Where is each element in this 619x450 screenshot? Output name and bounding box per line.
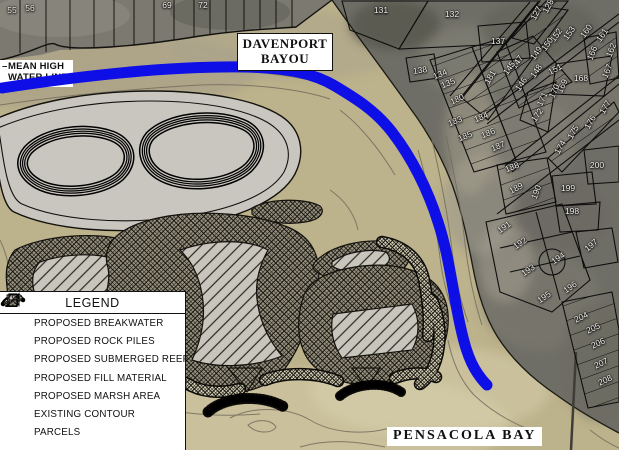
- legend-item-fill-material: PROPOSED FILL MATERIAL: [0, 369, 185, 387]
- legend-label: PROPOSED MARSH AREA: [34, 391, 160, 402]
- legend-label: PROPOSED ROCK PILES: [34, 336, 155, 347]
- plan-map: –MEAN HIGH WATER LINE 555669721311321371…: [0, 0, 619, 450]
- legend-item-parcels: PARCELS: [0, 424, 185, 442]
- legend-item-breakwater: PROPOSED BREAKWATER: [0, 314, 185, 332]
- legend-label: PARCELS: [34, 427, 80, 438]
- legend-item-marsh-area: PROPOSED MARSH AREA: [0, 387, 185, 405]
- legend-item-rock-piles: PROPOSED ROCK PILES: [0, 332, 185, 350]
- legend-title: LEGEND: [0, 292, 185, 313]
- legend-item-existing-contour: EXISTING CONTOUR: [0, 405, 185, 423]
- legend-item-submerged-reef: PROPOSED SUBMERGED REEF: [0, 351, 185, 369]
- legend: LEGEND PROPOSED BREAKWATER PROPOSED ROCK…: [0, 291, 186, 450]
- legend-label: PROPOSED BREAKWATER: [34, 318, 164, 329]
- legend-label: EXISTING CONTOUR: [34, 409, 135, 420]
- legend-label: PROPOSED SUBMERGED REEF: [34, 354, 189, 365]
- legend-label: PROPOSED FILL MATERIAL: [34, 373, 167, 384]
